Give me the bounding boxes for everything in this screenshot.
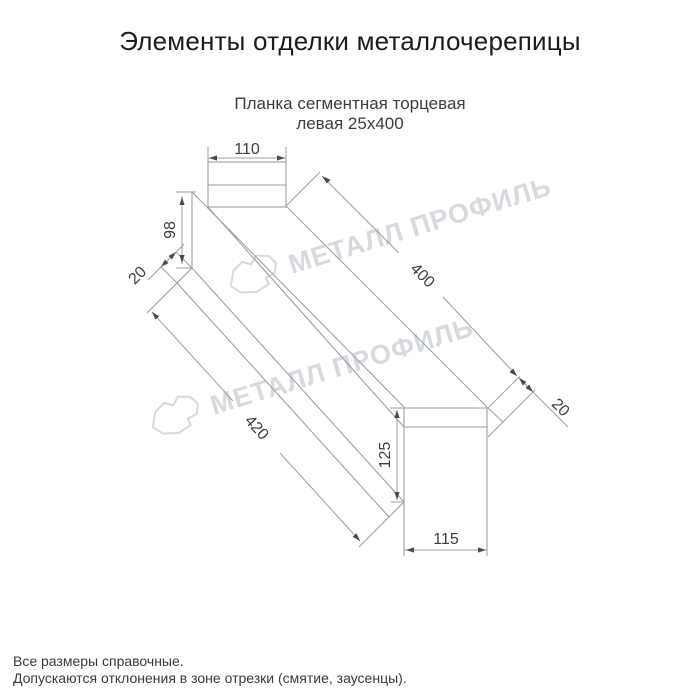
dimension-115-label: 115 [433,531,459,548]
dimension-110-label: 110 [234,141,260,158]
dimension-400-label: 400 [407,260,438,291]
dimension-20-left-label: 20 [126,263,151,288]
dimension-125-label: 125 [377,442,394,469]
dimension-arrows [152,155,533,552]
dimension-98-label: 98 [162,221,179,239]
dimension-20-right-label: 20 [548,396,573,421]
dimension-420-label: 420 [241,412,272,443]
trim-outline [147,162,503,556]
catalog-page: Элементы отделки металлочерепицы Планка … [0,0,700,700]
technical-drawing: 110 98 20 400 420 20 125 115 [0,0,700,700]
footer-note-1: Все размеры справочные. [13,653,184,669]
footer-note-2: Допускаются отклонения в зоне отрезки (с… [13,670,407,686]
